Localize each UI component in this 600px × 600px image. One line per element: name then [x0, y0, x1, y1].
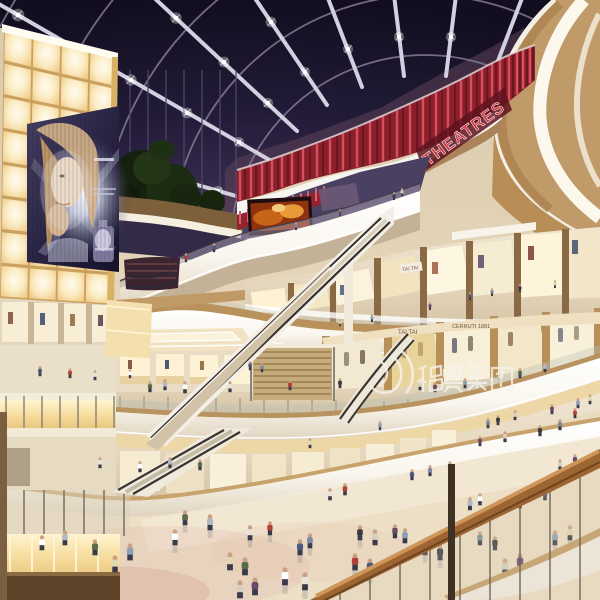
svg-text:CERRUTI 1881: CERRUTI 1881 [452, 324, 490, 330]
